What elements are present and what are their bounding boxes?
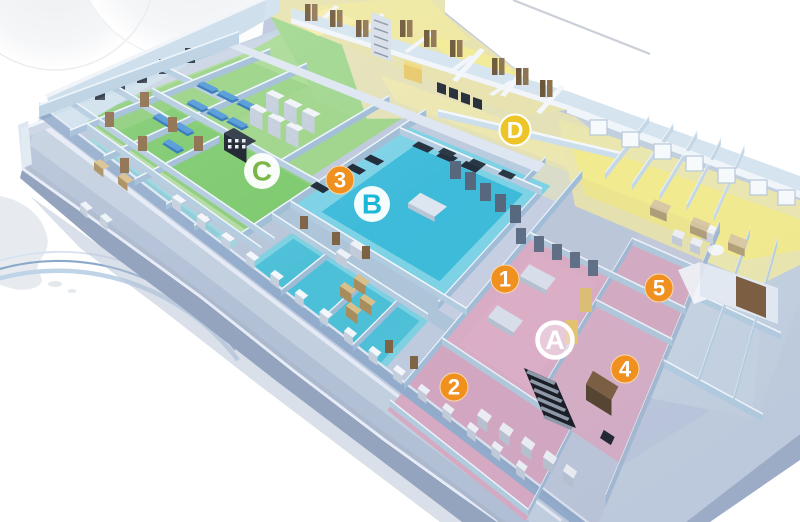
svg-text:2: 2 (448, 374, 460, 399)
svg-text:3: 3 (334, 167, 346, 192)
svg-text:B: B (362, 188, 382, 219)
svg-text:1: 1 (499, 266, 511, 291)
svg-text:5: 5 (653, 275, 665, 300)
svg-text:4: 4 (619, 356, 632, 381)
svg-text:A: A (545, 325, 565, 355)
svg-text:C: C (252, 155, 272, 186)
svg-text:D: D (507, 117, 524, 143)
